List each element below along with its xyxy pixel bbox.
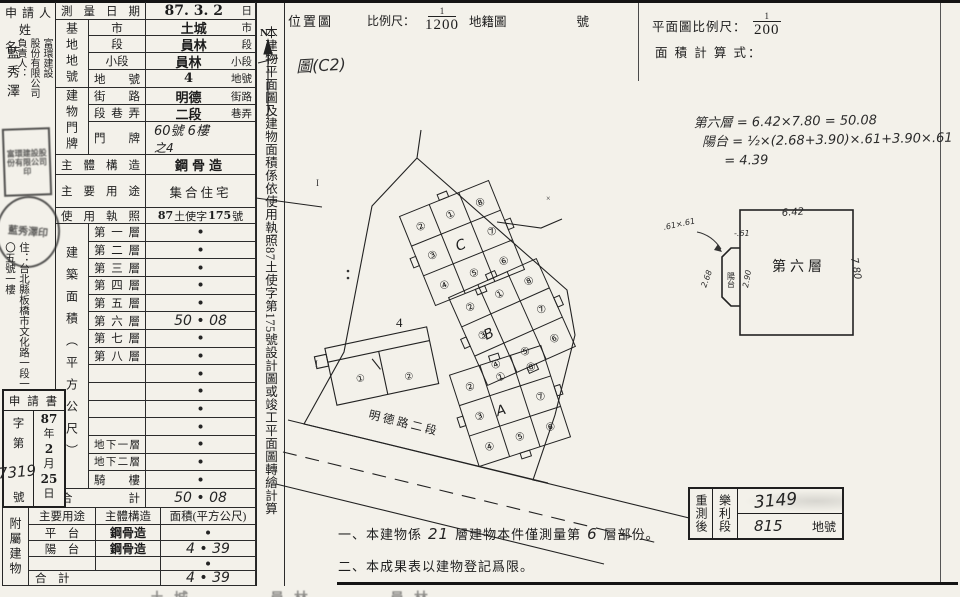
dim-290: 2.90 <box>741 269 753 288</box>
floor-row-value: • <box>146 401 256 419</box>
annex-total-label: 合 計 <box>29 571 161 586</box>
area-calc-formulas: 第六層 = 6.42×7.80 = 50.08 陽台 = ½×(2.68+3.9… <box>694 110 954 172</box>
unit-number: ⑦ <box>534 390 547 405</box>
annex-row-use: 陽 台 <box>29 541 96 557</box>
unit-number: ⑦ <box>535 302 549 317</box>
unit-number: ① <box>355 373 366 386</box>
cluster-c-label: C <box>453 236 468 255</box>
floor-plan: 第六層 6.42 7.80 陽台 .61×.61 -.61 2.68 2.90 <box>640 175 940 365</box>
base-lotno-label: 地號 <box>89 70 146 88</box>
arcade-label: 騎 樓 <box>89 471 146 489</box>
floor-row-value: • <box>146 295 256 313</box>
plan-header: 平面圖比例尺： 1 200 <box>652 12 781 38</box>
unit-number: ⑥ <box>497 254 511 269</box>
floor-row-label: 第一層 <box>89 224 146 242</box>
calc-balcony-result: = 4.39 <box>724 153 768 169</box>
base-section-label: 段 <box>89 36 146 53</box>
note-floor-hand: 6 <box>587 525 598 543</box>
calc-floor6-formula: = 6.42×7.80 = 50.08 <box>737 113 877 130</box>
cluster-a-label: A <box>493 402 508 420</box>
dim-268: 2.68 <box>699 269 714 289</box>
base-city-value: 土城市 <box>146 20 256 36</box>
usage-label: 主要用途 <box>56 175 146 208</box>
annex-row-use: 平 台 <box>29 525 96 541</box>
floor-row-value: • <box>146 418 256 436</box>
bottom-cutoff-text: 土城 員林 員林 <box>150 588 438 597</box>
floor-row-label: 第二層 <box>89 242 146 260</box>
annex-header-area: 面積(平方公尺) <box>161 508 256 525</box>
application-box: 申 請 書 字 第 號 7319 87 年 2 月 25 日 <box>2 389 66 508</box>
arcade-value: • <box>146 471 256 489</box>
floor-row-label <box>89 401 146 419</box>
annex-row-struct <box>96 557 161 571</box>
plan-scale-label: 平面圖比例尺： <box>652 16 747 35</box>
annex-row-use <box>29 557 96 571</box>
floor-row-label <box>89 365 146 383</box>
license-value: 87土使字175號 <box>146 208 256 224</box>
annex-balcony-area: 4 • 39 <box>161 541 256 557</box>
premise-group-label: 建物門牌 <box>56 88 89 155</box>
floor-row-label: 第七層 <box>89 330 146 348</box>
floor-row-value: • <box>146 259 256 277</box>
unit-number: ② <box>464 380 477 395</box>
base-section-value: 員林段 <box>146 36 256 53</box>
survey-date-stamp: 87. 3. 2 <box>146 3 242 19</box>
application-date-col: 87 年 2 月 25 日 <box>34 411 64 508</box>
annex-group-label: 附屬建物 <box>3 508 29 586</box>
unit-number: ① <box>494 370 507 385</box>
north-label: N <box>260 27 268 39</box>
unit-number: ③ <box>426 248 440 263</box>
unit-number: ④ <box>483 440 496 455</box>
usage-value: 集合住宅 <box>146 175 256 208</box>
unit-number: ⑧ <box>474 196 488 211</box>
plan-scale-fraction: 1 200 <box>753 12 782 38</box>
balcony-label: 陽台 <box>727 272 736 289</box>
application-number: 7319 <box>0 461 37 482</box>
lane-label: 段巷弄 <box>89 105 146 122</box>
lot-number: 4 <box>396 315 403 330</box>
lane-value: 二段巷弄 <box>146 105 256 122</box>
annex-header-struct: 主體構造 <box>96 508 161 525</box>
door-label: 門牌 <box>89 122 146 155</box>
survey-date-value: 87. 3. 2 日 <box>146 2 256 20</box>
base-lotno-value: 4地號 <box>146 70 256 88</box>
floor-row-value: • <box>146 224 256 242</box>
street-upper-edge <box>288 420 726 527</box>
basement1-label: 地下一層 <box>89 436 146 454</box>
survey-date-suffix: 日 <box>242 3 256 18</box>
resurvey-number1: 3149 <box>753 489 798 513</box>
floor-row-value: • <box>146 277 256 295</box>
resurvey-number2: 815 <box>754 517 783 535</box>
basement2-value: • <box>146 454 256 472</box>
floor-row-label: 第三層 <box>89 259 146 277</box>
unit-number: ② <box>464 300 478 315</box>
floor-label: 第六層 <box>772 258 826 275</box>
door-line1: 60號 6樓 <box>154 122 209 139</box>
floor-row-label: 第八層 <box>89 348 146 366</box>
annex-row-struct: 鋼骨造 <box>96 541 161 557</box>
unit-number: ④ <box>438 278 452 293</box>
unit-number: ② <box>404 371 415 384</box>
structure-value: 鋼骨造 <box>146 155 256 175</box>
floor-total-value: 50 • 08 <box>146 489 256 508</box>
resurvey-label: 重測後 <box>690 489 713 538</box>
floor-row-label: 第四層 <box>89 277 146 295</box>
base-subsection-value: 員林小段 <box>146 53 256 70</box>
door-value: 60號 6樓 之4 <box>146 122 256 155</box>
unit-number: ② <box>414 220 428 235</box>
unit-number: ⑧ <box>522 274 536 289</box>
survey-form: 測量日期 87. 3. 2 日 基地地號 市 土城市 段 員林段 小段 員林小段… <box>55 2 256 508</box>
application-title: 申 請 書 <box>4 391 64 411</box>
unit-number: ① <box>444 208 458 223</box>
applicant-header-line1: 申 請 人 <box>5 4 51 21</box>
annex-row-area: • <box>161 525 256 541</box>
low-building: ① ② <box>313 327 439 408</box>
floor-total-label: 合 計 <box>56 489 146 508</box>
resurvey-number1-cell: 3149 <box>738 489 842 514</box>
floor-row-label: 第五層 <box>89 295 146 313</box>
street-name: 明德路二段 <box>367 407 441 438</box>
floor-row-value: • <box>146 383 256 401</box>
unit-number: ⑥ <box>544 420 557 435</box>
base-subsection-label: 小段 <box>89 53 146 70</box>
calc-balcony-label: 陽台 <box>702 135 728 150</box>
door-line2: 之4 <box>154 139 174 155</box>
structure-label: 主體構造 <box>56 155 146 175</box>
floor-row-value-6: 50 • 08 <box>146 312 256 330</box>
unit-number: ① <box>493 287 507 302</box>
annex-header-use: 主要用途 <box>29 508 96 525</box>
bottom-border-line <box>337 582 958 585</box>
company-seal-stamp: 富環建設股份有限公司印 <box>2 127 52 197</box>
survey-mark: × <box>546 194 551 203</box>
floor-row-value: • <box>146 365 256 383</box>
area-calc-label: 面 積 計 算 式： <box>655 42 763 61</box>
note-line-2: 二、本成果表以建物登記爲限。 <box>338 556 534 575</box>
building-survey-sheet: 申 請 人 姓 名 富環建設 股份有限公司 負責人： 藍秀澤 住：台北縣板橋市文… <box>0 0 960 597</box>
license-label: 使用執照 <box>56 208 146 224</box>
basement1-value: • <box>146 436 256 454</box>
resurvey-box: 重測後 樂利段 3149 815 地號 <box>688 487 844 540</box>
dim-top: 6.42 <box>781 206 804 219</box>
application-number-col: 字 第 號 7319 <box>4 411 34 507</box>
annex-row-area: • <box>161 557 256 571</box>
resurvey-number2-cell: 815 地號 <box>738 514 842 538</box>
annex-table: 附屬建物 主要用途 主體構造 面積(平方公尺) 平 台 鋼骨造 • 陽 台 鋼骨… <box>2 508 256 586</box>
dim-right: 7.80 <box>848 257 863 281</box>
unit-number: ⑤ <box>468 266 482 281</box>
dim-minus61: -.61 <box>734 229 750 238</box>
unit-number: ③ <box>473 410 486 425</box>
building-cluster-b: ① ② ③ ④ ⑤ ⑥ ⑦ ⑧ B <box>441 251 584 394</box>
base-city-label: 市 <box>89 20 146 36</box>
survey-tick: I <box>316 178 319 188</box>
survey-tick: I <box>315 359 318 369</box>
unit-number: ⑤ <box>514 430 527 445</box>
street-value: 明德街路 <box>146 88 256 105</box>
unit-number: ⑧ <box>525 360 538 375</box>
applicant-principal-name: 藍秀澤 <box>3 46 22 103</box>
unit-number: ⑥ <box>548 332 562 347</box>
floor-row-value: • <box>146 330 256 348</box>
survey-date-label: 測量日期 <box>56 2 146 20</box>
unit-number: ⑦ <box>485 224 499 239</box>
compass-arrowhead <box>264 40 272 54</box>
calc-balcony-formula: = ½×(2.68+3.90)×.61+3.90×.61 <box>732 131 953 150</box>
floor-row-label <box>89 383 146 401</box>
floor-row-label <box>89 418 146 436</box>
base-group-label: 基地地號 <box>56 20 89 88</box>
street-label: 街路 <box>89 88 146 105</box>
resurvey-suffix: 地號 <box>812 518 836 535</box>
floor-row-label-6: 第六層 <box>89 312 146 330</box>
right-edge-line <box>940 3 941 585</box>
annex-total-area: 4 • 39 <box>161 571 256 586</box>
resurvey-section: 樂利段 <box>713 489 738 538</box>
floor-row-value: • <box>146 348 256 366</box>
note-line-1: 一、本建物係 21 層建物本件僅測量第 6 層部份。 <box>338 524 660 543</box>
annex-row-struct: 鋼骨造 <box>96 525 161 541</box>
basement2-label: 地下二層 <box>89 454 146 472</box>
dim-61x61: .61×.61 <box>663 216 696 231</box>
calc-floor6-label: 第六層 <box>694 116 733 132</box>
note-floors-hand: 21 <box>428 525 449 543</box>
floor-row-value: • <box>146 242 256 260</box>
